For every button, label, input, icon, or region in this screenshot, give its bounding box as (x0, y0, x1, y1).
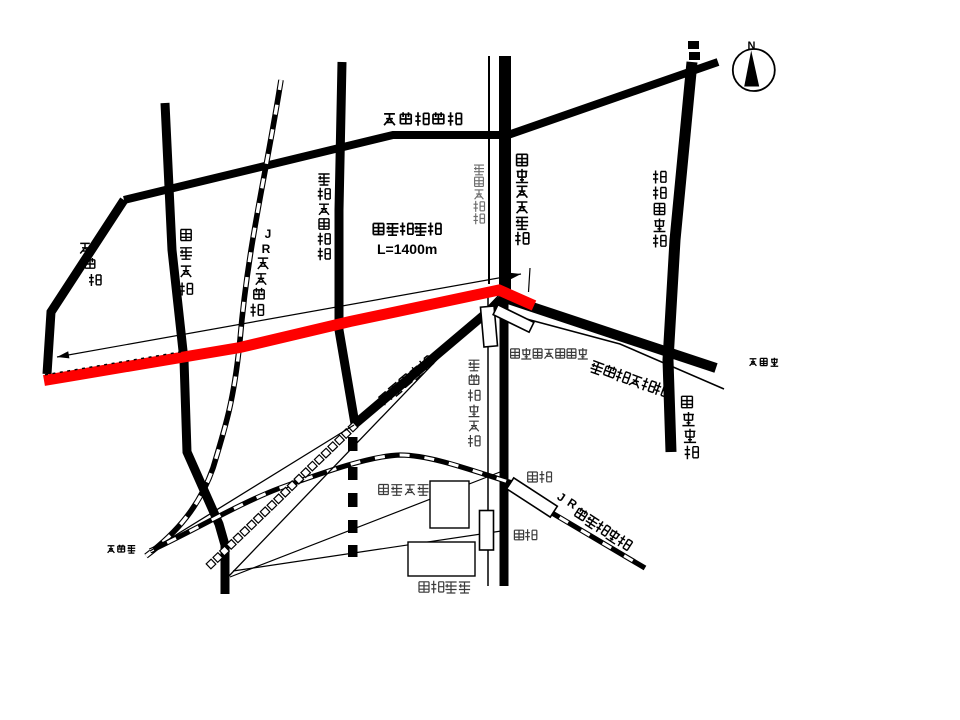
svg-text:R: R (262, 242, 271, 256)
svg-text:N: N (748, 40, 756, 52)
svg-text:J: J (265, 227, 272, 241)
svg-text:L=1400m: L=1400m (377, 241, 437, 257)
